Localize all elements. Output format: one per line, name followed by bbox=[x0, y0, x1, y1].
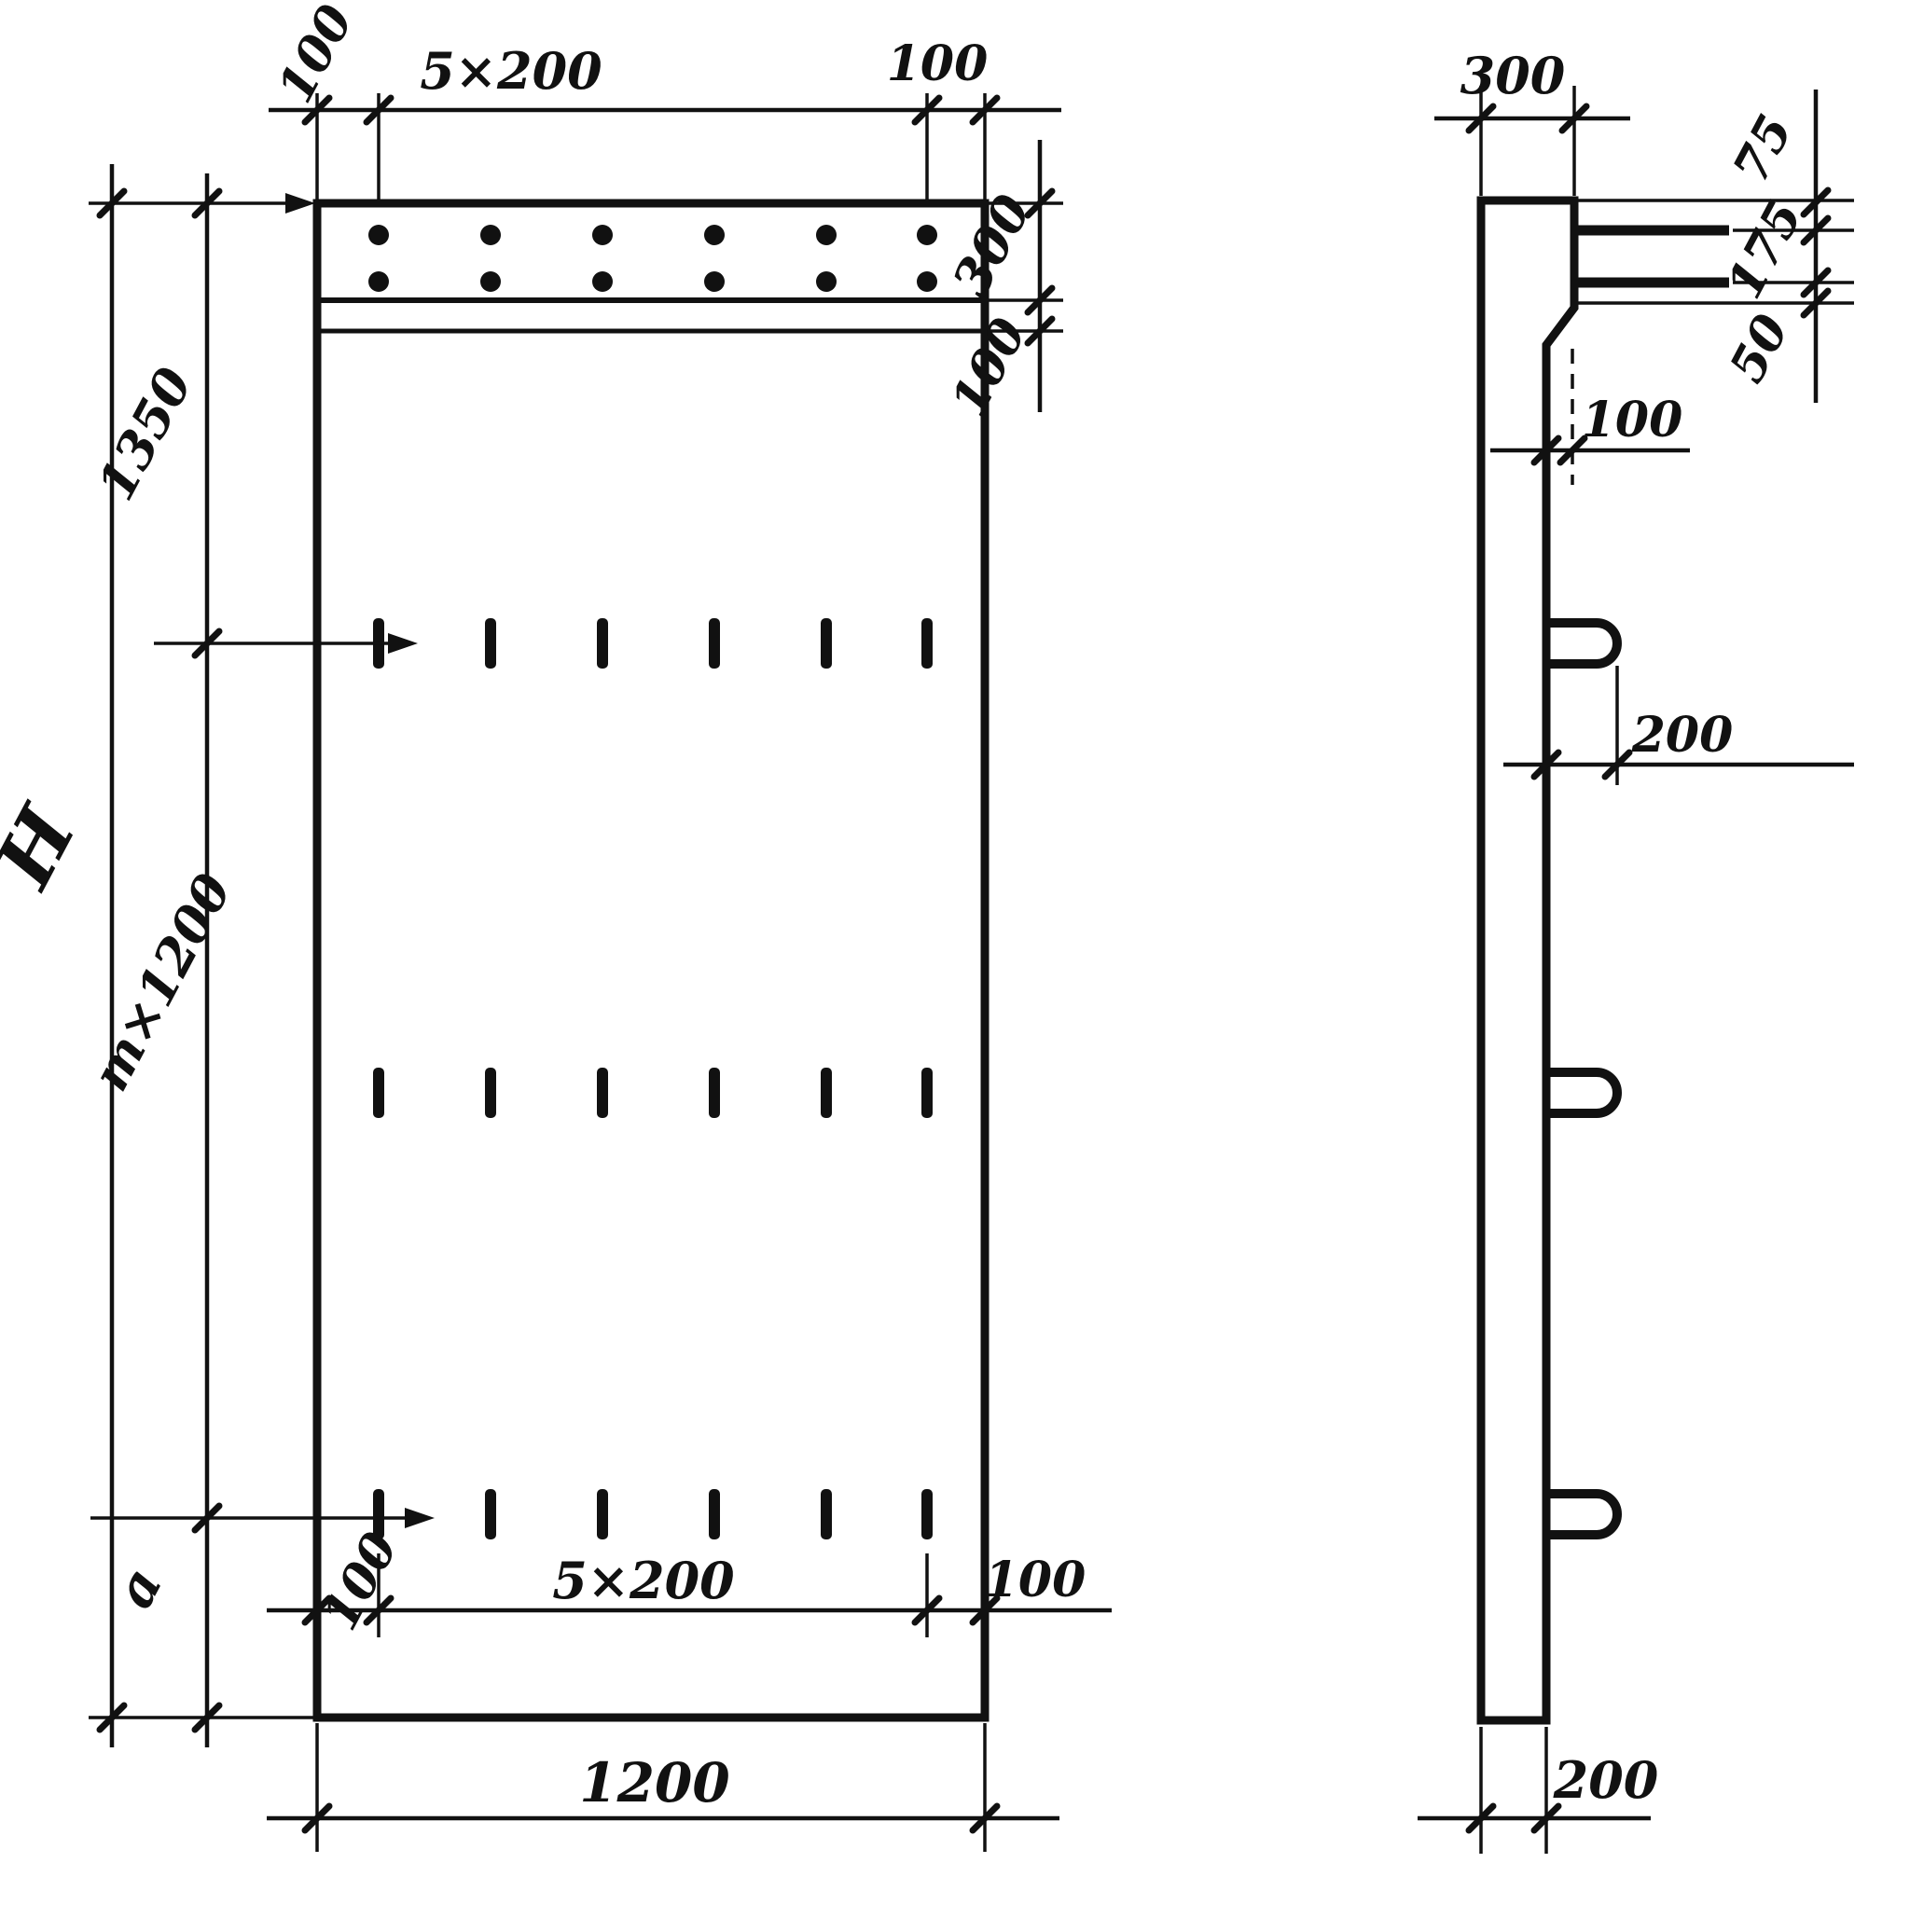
dim-label-bottom-right-offset: 100 bbox=[985, 1552, 1086, 1608]
rebar-dash bbox=[709, 1068, 720, 1118]
lifting-loop bbox=[1546, 1072, 1617, 1113]
rebar-dash-rows bbox=[373, 618, 933, 1539]
front-top-dimension: 100 5×200 100 bbox=[267, 0, 1061, 201]
anchor-dot bbox=[480, 271, 501, 292]
anchor-dot bbox=[368, 225, 389, 245]
anchor-dot bbox=[917, 225, 937, 245]
dim-label-loop-length: 200 bbox=[1631, 707, 1734, 764]
panel-outline bbox=[317, 203, 985, 1718]
rebar-dash bbox=[921, 1489, 933, 1539]
dim-label-bar-bottom-offset: 50 bbox=[1719, 306, 1801, 393]
rebar-dash bbox=[821, 1489, 832, 1539]
rebar-dash bbox=[921, 1068, 933, 1118]
anchor-dot bbox=[368, 271, 389, 292]
front-right-dimension: 300 100 bbox=[940, 140, 1063, 425]
dim-label-bottom-pitch: 5×200 bbox=[552, 1551, 735, 1610]
dim-label-bar-top-offset: 75 bbox=[1723, 106, 1805, 193]
rebar-dash bbox=[709, 618, 720, 669]
dim-label-top-segment: 1350 bbox=[86, 358, 204, 510]
dim-label-side-width: 300 bbox=[1460, 46, 1566, 105]
rebar-dash bbox=[485, 1068, 496, 1118]
rebar-dash bbox=[821, 618, 832, 669]
anchor-dot bbox=[704, 225, 725, 245]
dim-label-bar-spacing: 175 bbox=[1716, 192, 1814, 308]
rebar-dash bbox=[485, 618, 496, 669]
side-right-dimension: 75 175 50 bbox=[1716, 90, 1828, 403]
dim-label-top-left-offset: 100 bbox=[267, 0, 365, 112]
dim-label-strip-height: 100 bbox=[940, 310, 1038, 425]
side-top-dimension: 300 bbox=[1434, 46, 1630, 196]
rebar-dash bbox=[709, 1489, 720, 1539]
lifting-loop bbox=[1546, 1494, 1617, 1535]
front-width-dimension: 1200 bbox=[267, 1723, 1059, 1852]
anchor-dot bbox=[592, 225, 613, 245]
extension-arrow bbox=[405, 1508, 435, 1528]
dim-label-top-right-offset: 100 bbox=[887, 35, 989, 92]
side-view: 300 75 175 50 100 200 bbox=[1418, 46, 1854, 1854]
lifting-loop bbox=[1546, 623, 1617, 664]
rebar-dash bbox=[373, 1068, 384, 1118]
technical-drawing: 100 5×200 100 300 100 bbox=[0, 0, 1910, 1932]
side-ledge-dimension: 100 bbox=[1490, 349, 1690, 485]
rebar-dash bbox=[921, 618, 933, 669]
extension-arrow bbox=[285, 193, 315, 214]
rebar-dash bbox=[485, 1489, 496, 1539]
anchor-dot bbox=[704, 271, 725, 292]
side-loop-dimension: 200 bbox=[1503, 666, 1854, 785]
anchor-dot bbox=[480, 225, 501, 245]
anchor-dot bbox=[592, 271, 613, 292]
front-view: 100 5×200 100 300 100 bbox=[0, 0, 1112, 1852]
rebar-dash bbox=[597, 1489, 608, 1539]
anchor-dot bbox=[917, 271, 937, 292]
anchor-dot-grid bbox=[368, 225, 937, 292]
dim-label-overall-width: 1200 bbox=[579, 1751, 729, 1815]
dim-label-middle-segment: m×1200 bbox=[80, 864, 243, 1100]
extension-arrow bbox=[388, 633, 418, 654]
dim-label-bottom-left-offset: 100 bbox=[311, 1524, 409, 1639]
rebar-dash bbox=[821, 1068, 832, 1118]
dim-label-ledge-offset: 100 bbox=[1582, 392, 1683, 448]
rebar-dash bbox=[597, 618, 608, 669]
side-thickness-dimension: 200 bbox=[1418, 1727, 1658, 1854]
drawing-canvas: 100 5×200 100 300 100 bbox=[0, 0, 1910, 1932]
dim-label-panel-thickness: 200 bbox=[1553, 1750, 1659, 1810]
anchor-dot bbox=[816, 225, 837, 245]
rebar-dash bbox=[597, 1068, 608, 1118]
dim-label-overall-height: H bbox=[0, 791, 95, 904]
dim-label-top-pitch: 5×200 bbox=[420, 41, 602, 101]
anchor-dot bbox=[816, 271, 837, 292]
front-left-dimension: H 1350 m×1200 a bbox=[0, 164, 435, 1747]
